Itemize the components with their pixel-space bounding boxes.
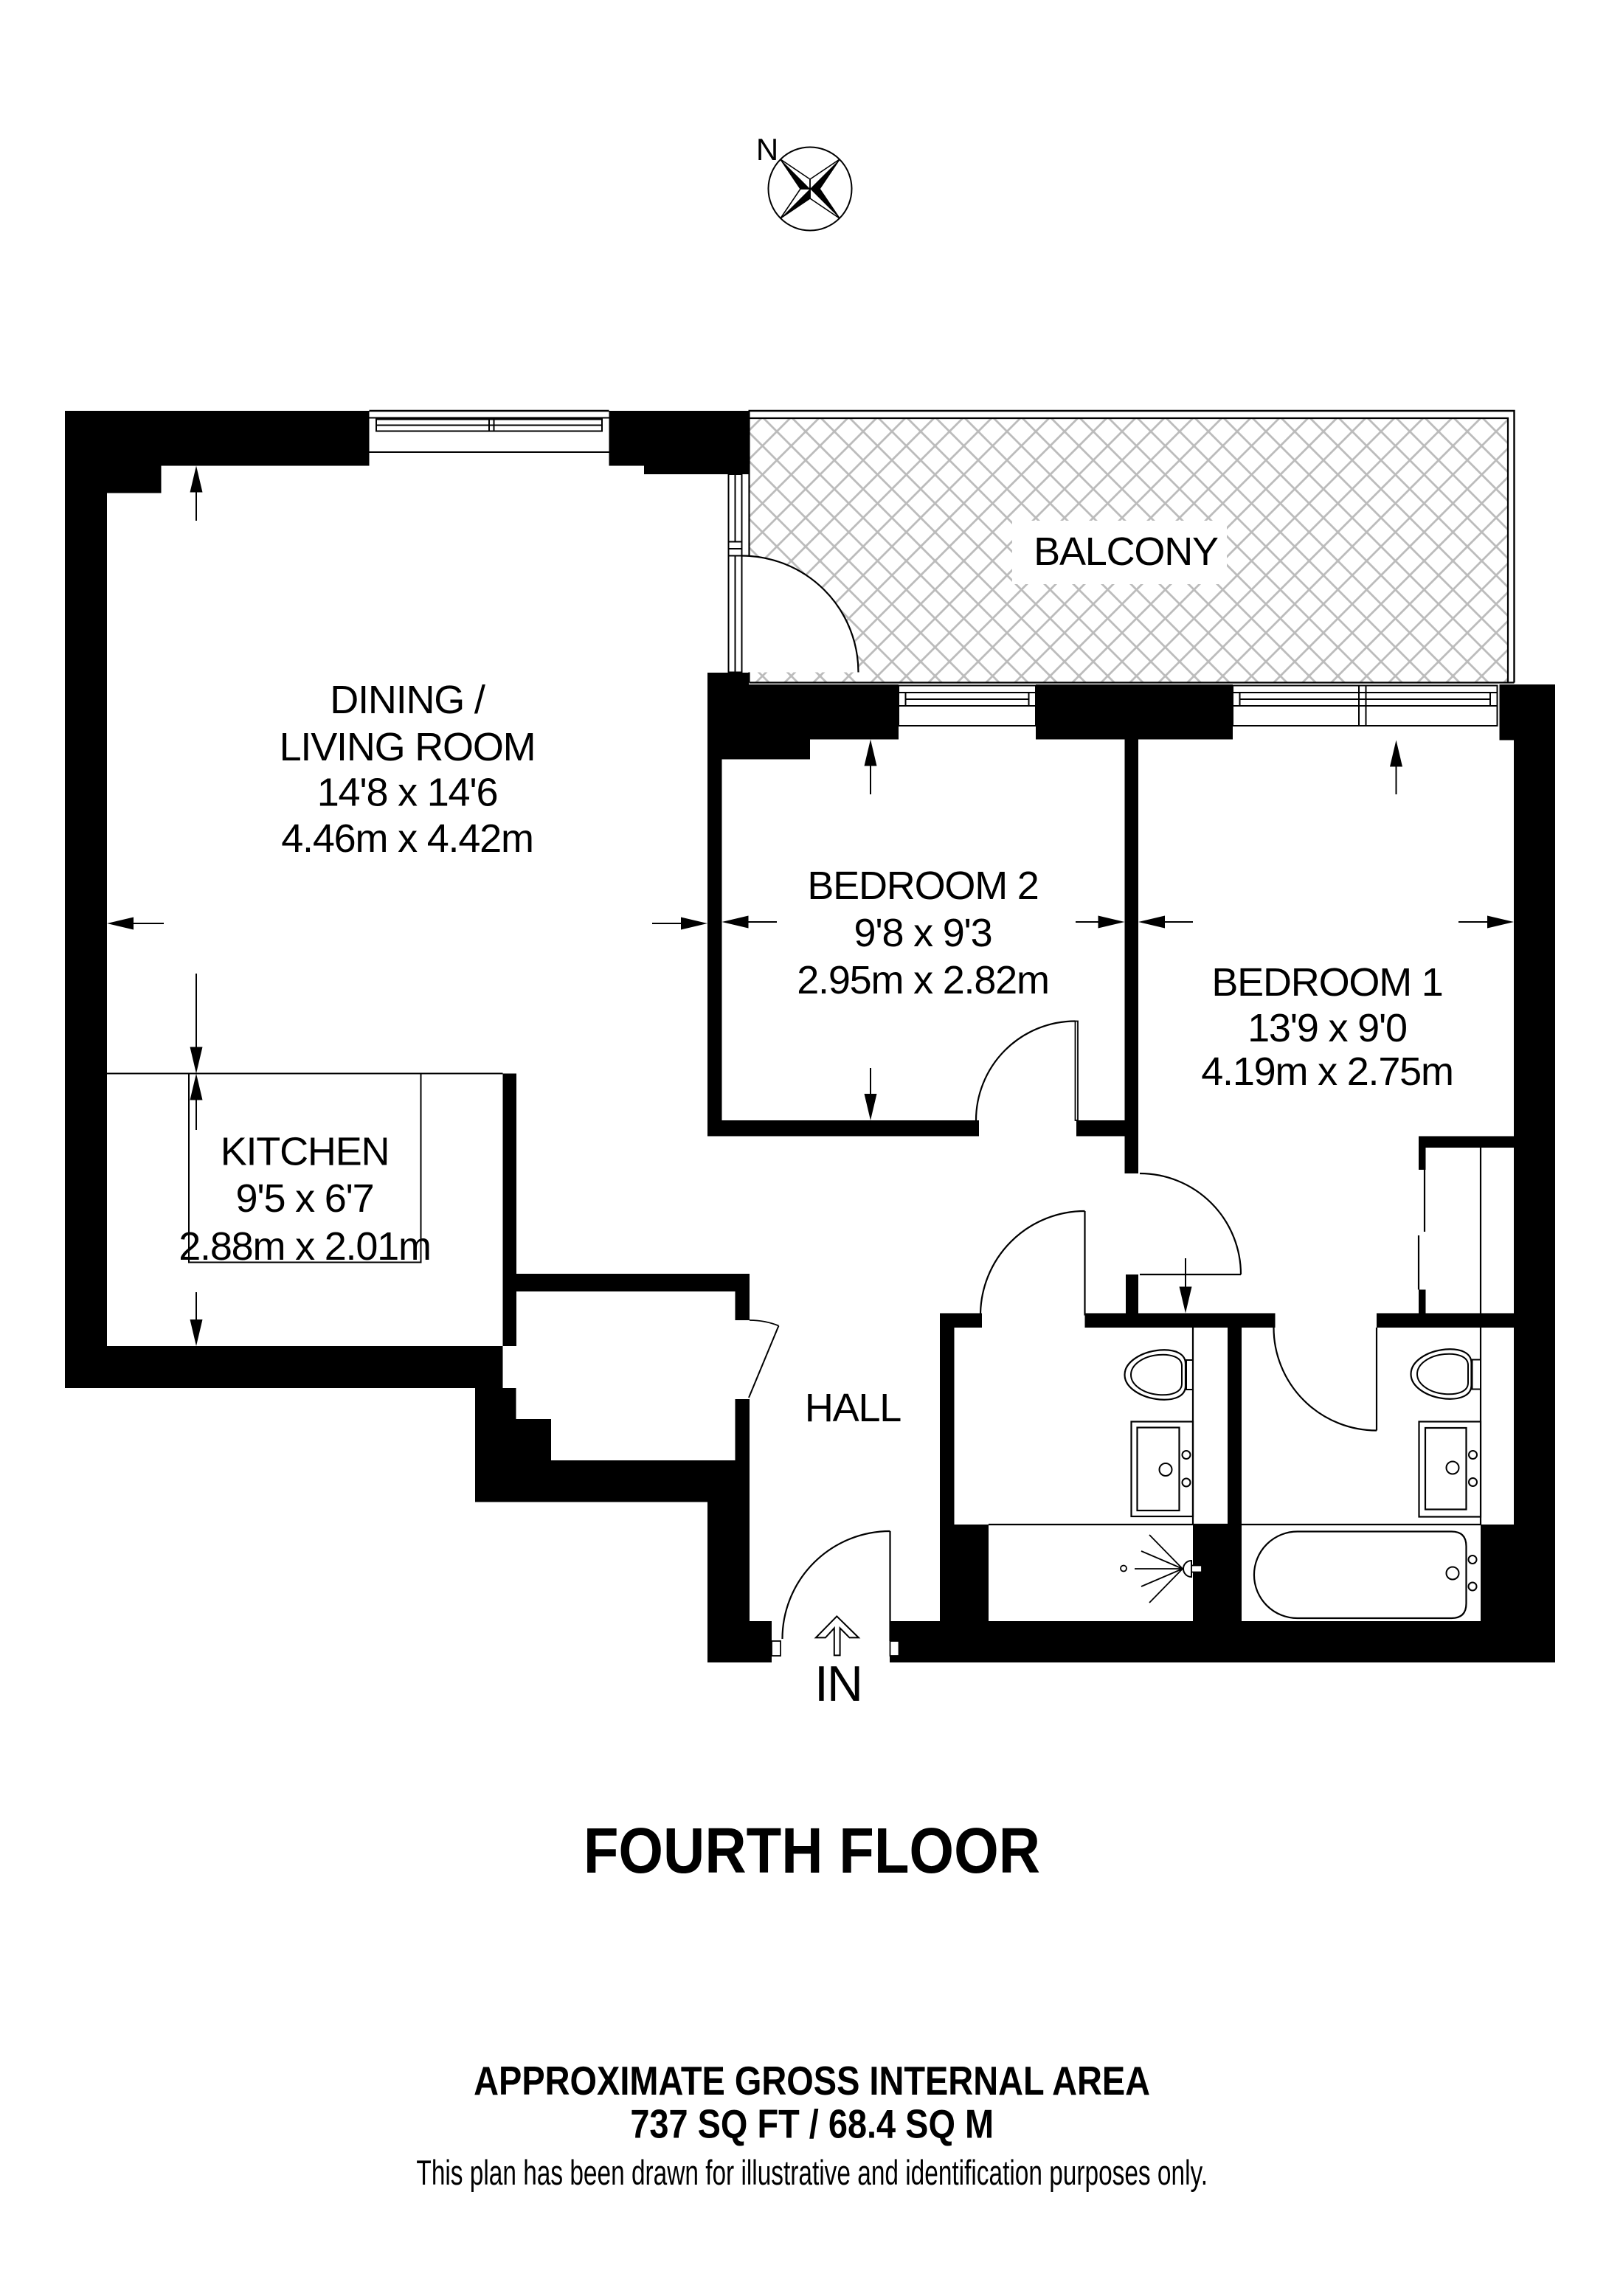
svg-text:9'8 x 9'3: 9'8 x 9'3 [854,911,992,955]
svg-text:IN: IN [814,1656,862,1712]
svg-text:KITCHEN: KITCHEN [221,1130,390,1174]
svg-text:4.19m x 2.75m: 4.19m x 2.75m [1201,1050,1453,1094]
svg-text:HALL: HALL [805,1386,901,1430]
svg-text:737 SQ FT / 68.4 SQ M: 737 SQ FT / 68.4 SQ M [630,2101,994,2146]
svg-text:APPROXIMATE GROSS INTERNAL ARE: APPROXIMATE GROSS INTERNAL AREA [474,2059,1150,2103]
svg-text:9'5 x 6'7: 9'5 x 6'7 [236,1176,374,1221]
svg-text:This plan has been drawn for i: This plan has been drawn for illustrativ… [416,2153,1208,2192]
svg-text:BALCONY: BALCONY [1034,530,1218,574]
svg-text:N: N [756,132,778,167]
svg-text:BEDROOM 2: BEDROOM 2 [807,864,1038,908]
svg-text:2.88m x 2.01m: 2.88m x 2.01m [179,1224,431,1269]
svg-text:FOURTH FLOOR: FOURTH FLOOR [584,1814,1040,1887]
svg-text:14'8 x 14'6: 14'8 x 14'6 [317,771,498,815]
svg-text:BEDROOM 1: BEDROOM 1 [1211,960,1442,1005]
svg-text:LIVING ROOM: LIVING ROOM [280,725,536,769]
svg-text:2.95m x 2.82m: 2.95m x 2.82m [797,958,1049,1002]
svg-text:DINING /: DINING / [330,678,485,722]
svg-text:4.46m x 4.42m: 4.46m x 4.42m [281,816,533,861]
svg-text:13'9 x 9'0: 13'9 x 9'0 [1247,1006,1407,1050]
